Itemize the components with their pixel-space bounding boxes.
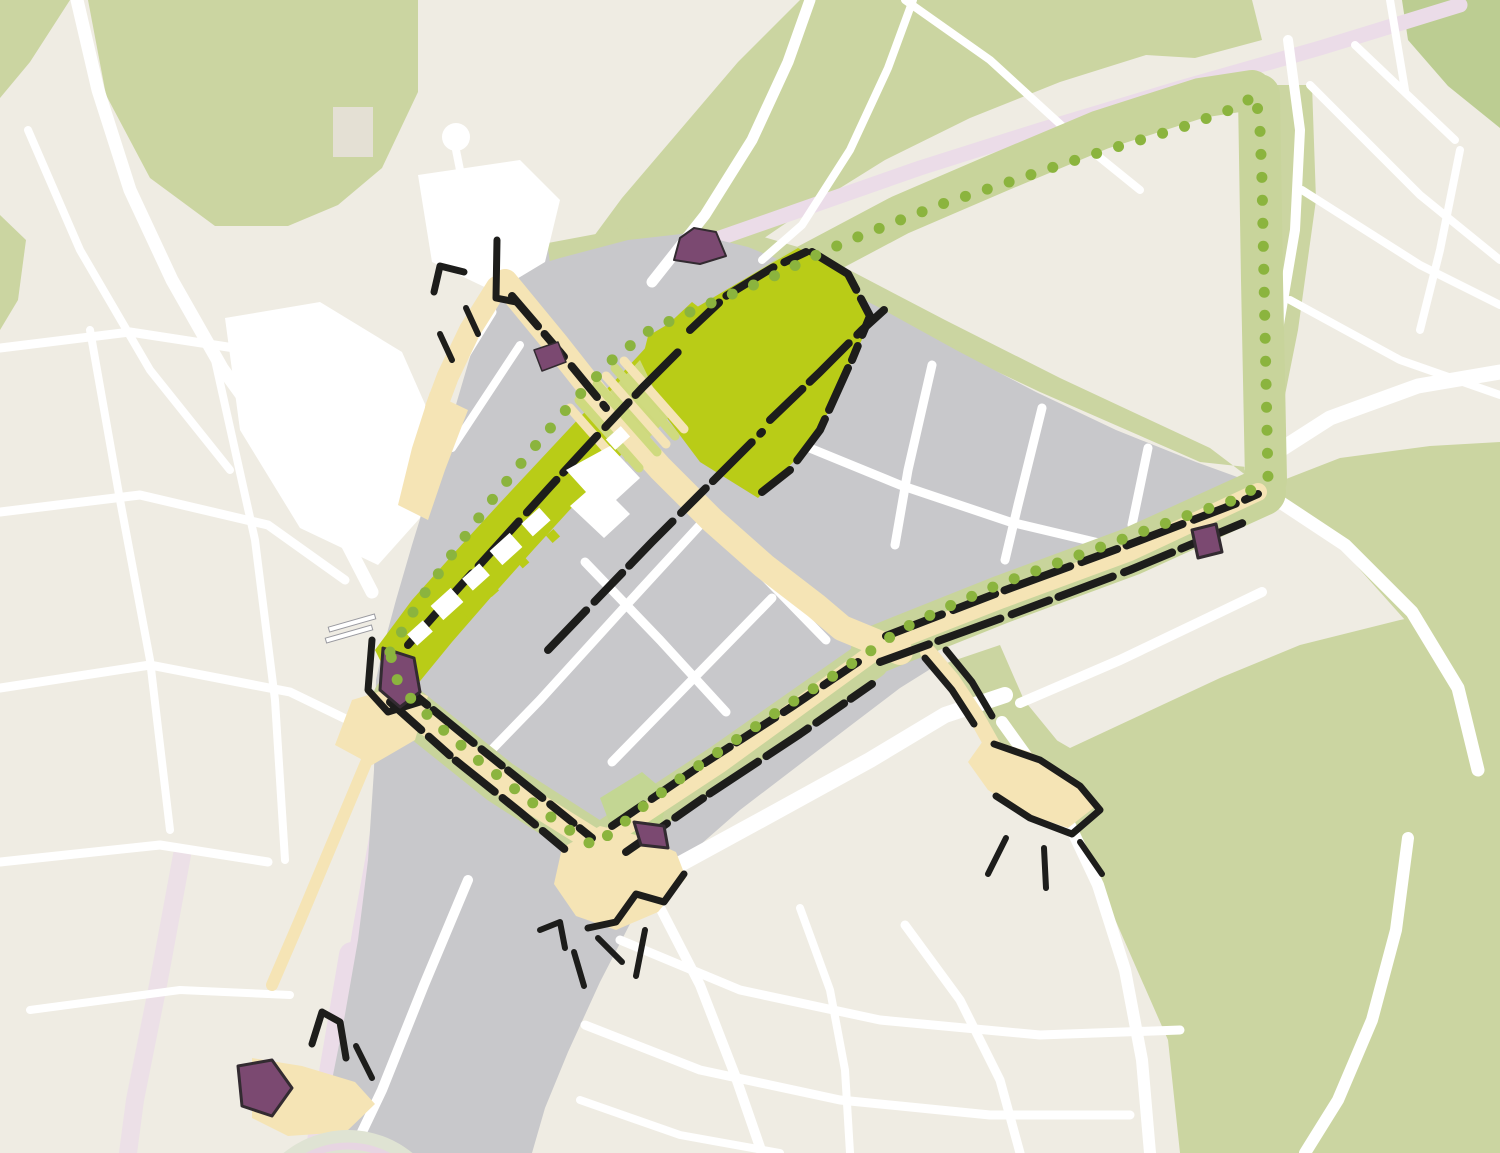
frontage-top-mark-1	[434, 266, 464, 292]
map-canvas	[0, 0, 1500, 1153]
park-top-left-corner	[0, 0, 70, 98]
landmark-east-avenue	[1192, 524, 1222, 558]
road-topright-6	[1420, 150, 1460, 330]
beige-patch-in-park	[333, 107, 373, 157]
frontage-fan-tick-1	[988, 838, 1006, 874]
road-se-1	[652, 892, 762, 1153]
frontage-fan-tick-2	[1044, 848, 1046, 888]
rail-second-band	[128, 855, 182, 1153]
masterplan-map	[0, 0, 1500, 1153]
road-left-7	[90, 330, 170, 830]
park-left-sliver	[0, 215, 26, 330]
road-left-4	[0, 845, 268, 862]
road-topright-1	[1310, 85, 1500, 260]
road-left-3	[0, 665, 352, 722]
road-se-5	[800, 908, 850, 1153]
park-southeast	[1008, 600, 1500, 1153]
road-topright-3	[1302, 190, 1500, 305]
